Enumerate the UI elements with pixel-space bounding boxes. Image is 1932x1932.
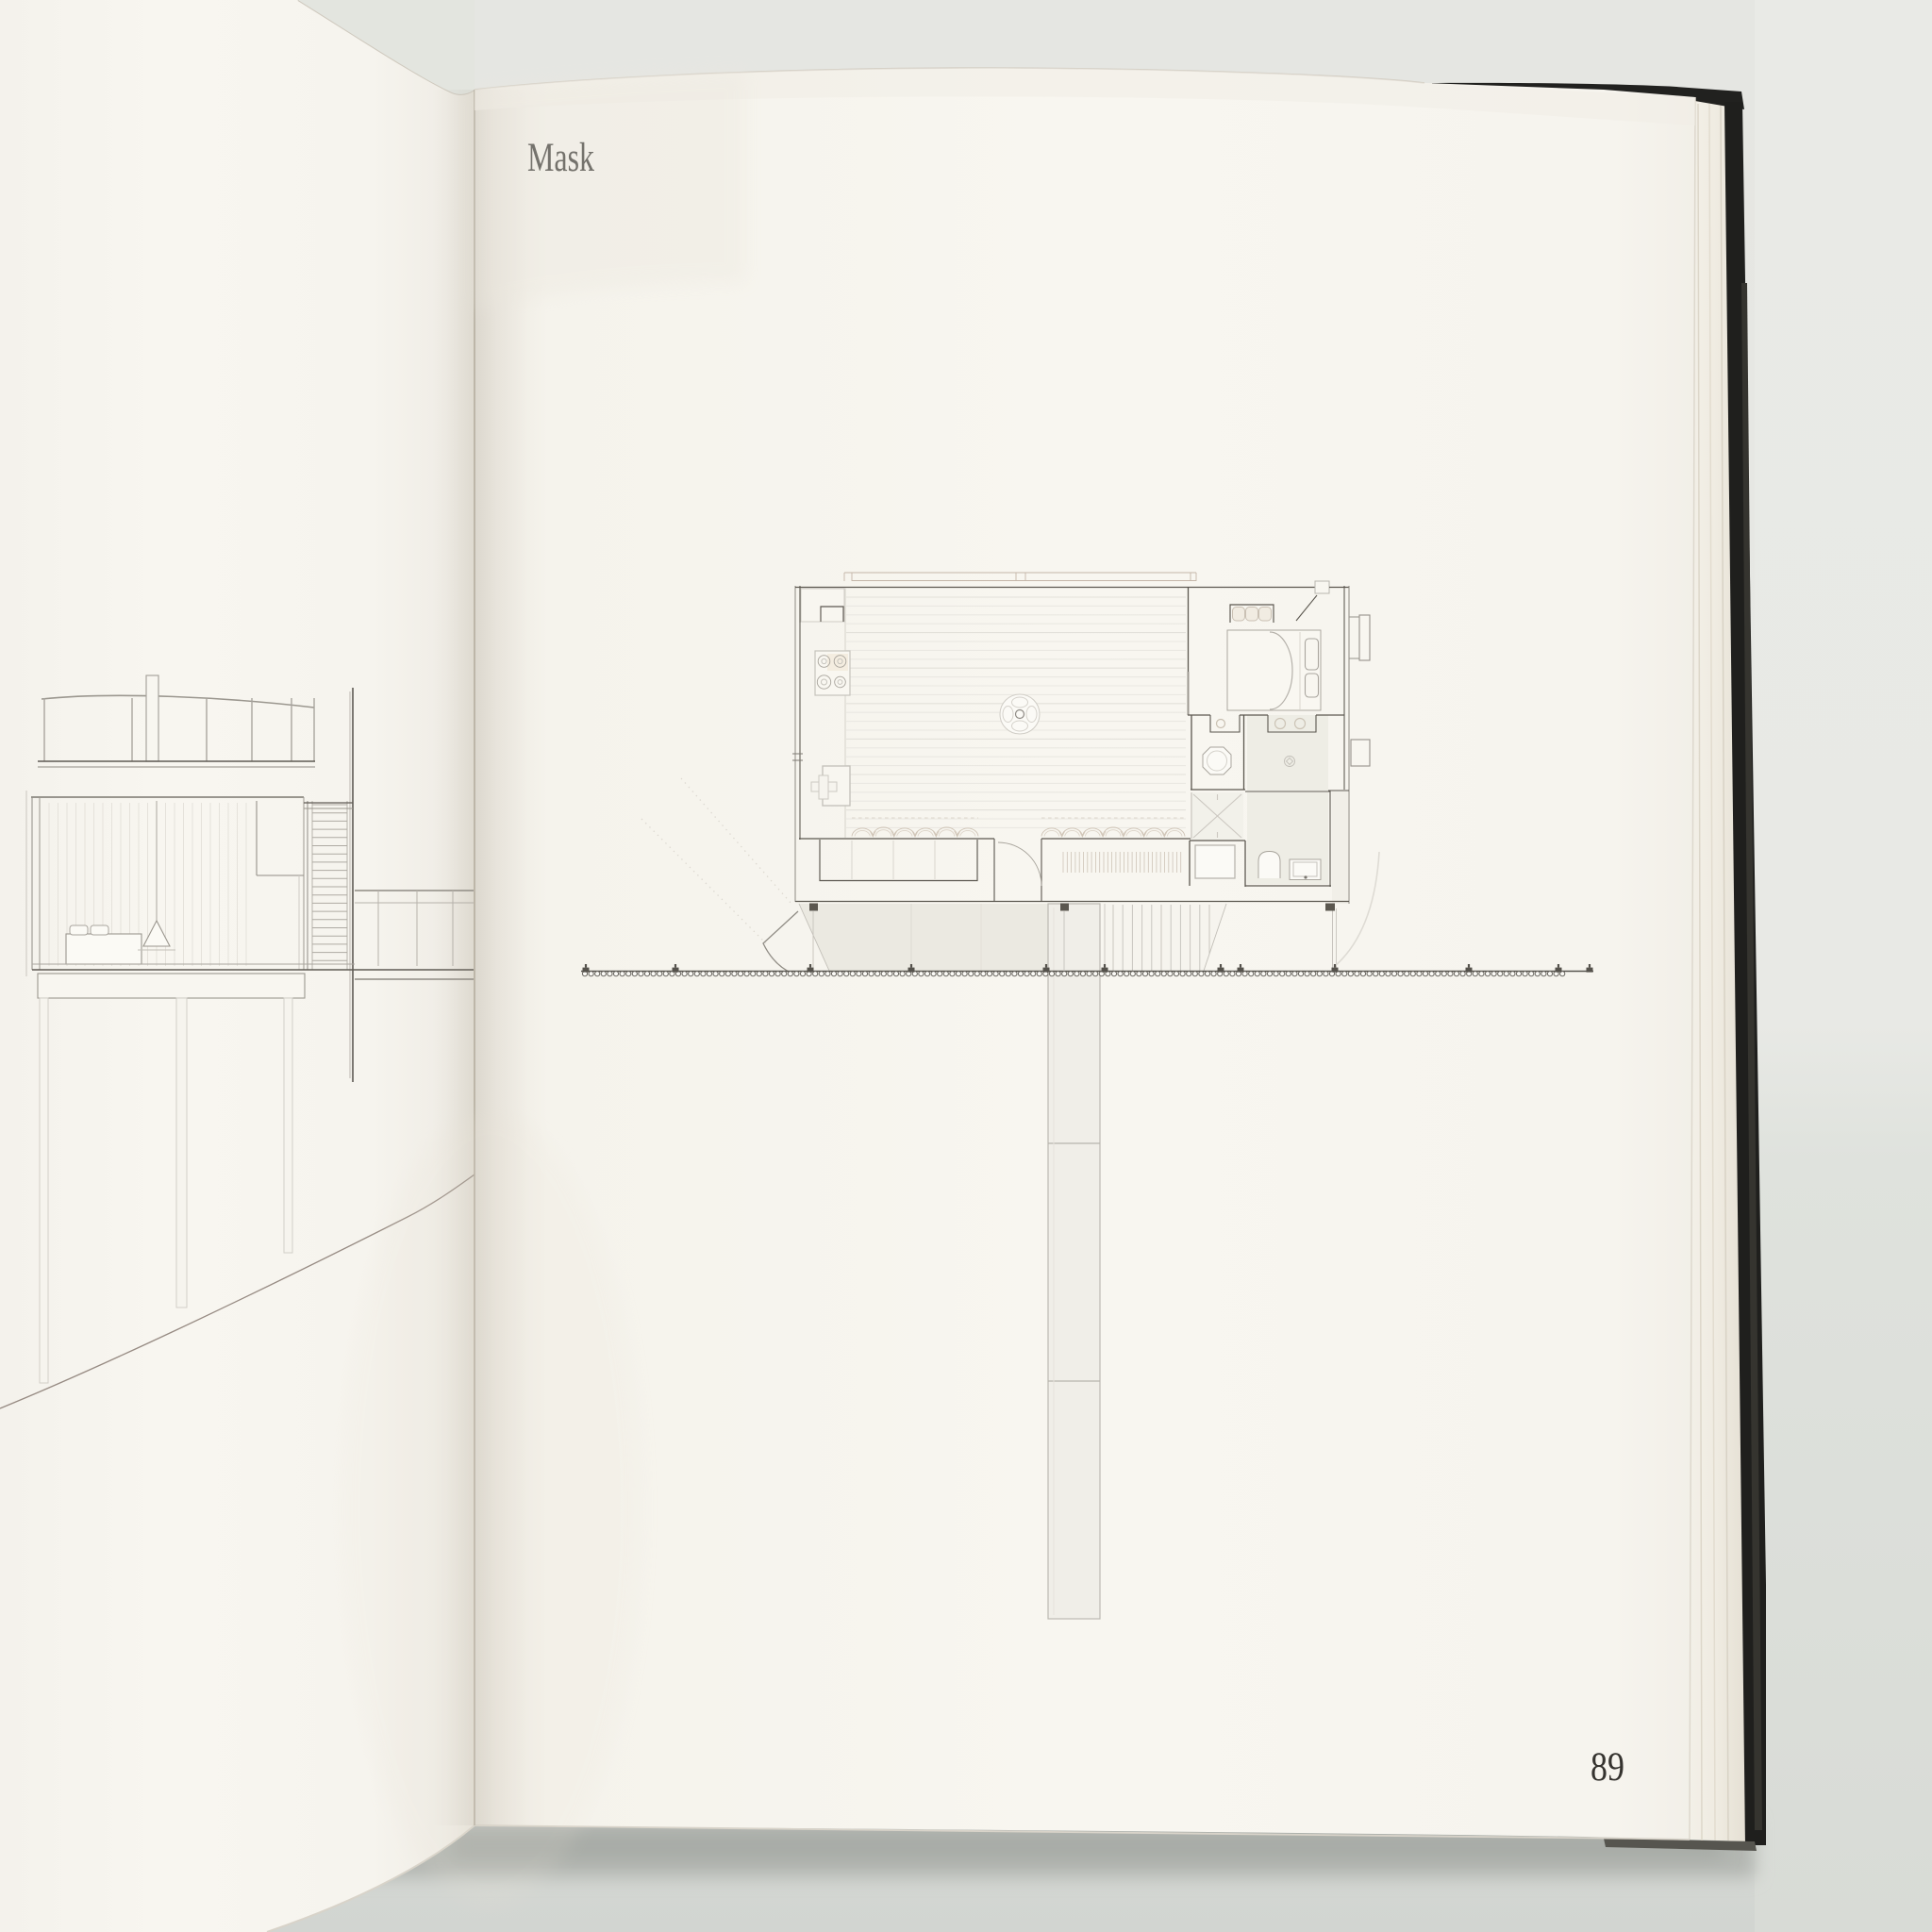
- svg-text:89: 89: [1591, 1745, 1624, 1790]
